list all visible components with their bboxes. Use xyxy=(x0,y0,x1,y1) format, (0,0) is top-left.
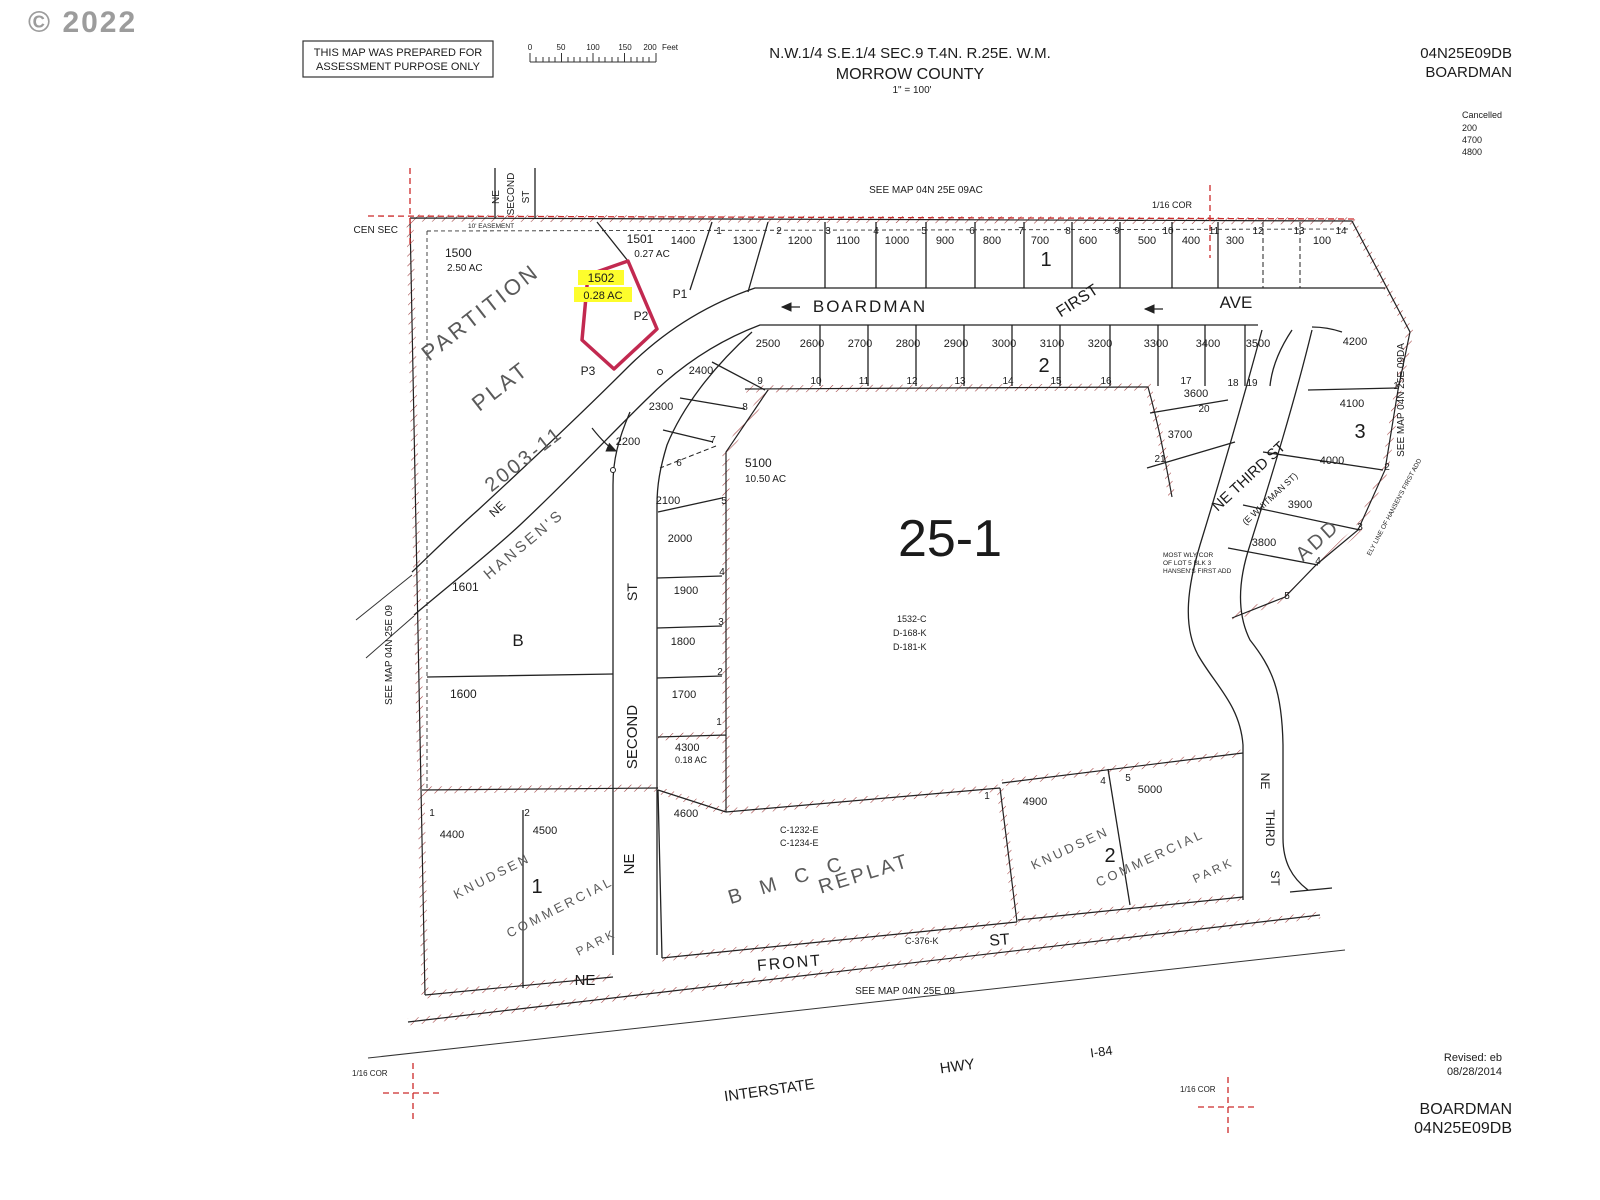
see-map-right: SEE MAP 04N 25E 09DA xyxy=(1396,343,1407,457)
lot-corner-number: 19 xyxy=(1246,378,1258,389)
hwy-label: HWY xyxy=(939,1056,976,1078)
scale-tick-50: 50 xyxy=(557,43,566,52)
lot-label: 1600 xyxy=(450,687,477,701)
ave-label: AVE xyxy=(1220,293,1253,312)
partition-lot-p3: P3 xyxy=(581,364,596,378)
knudsen1-park: PARK xyxy=(573,926,618,958)
front-st-ne: NE xyxy=(575,972,596,989)
lot-corner-number: 9 xyxy=(1114,226,1120,237)
block2-number: 2 xyxy=(1038,355,1049,377)
partition-lot-p2: P2 xyxy=(634,309,649,323)
scale-tick-0: 0 xyxy=(528,43,533,52)
lot-corner-number: 1 xyxy=(1393,381,1399,392)
lot-label: 3400 xyxy=(1196,338,1220,350)
lot-corner-number: 4 xyxy=(873,226,879,237)
interstate-label: INTERSTATE xyxy=(723,1076,816,1106)
lot-corner-number: 5 xyxy=(721,496,727,507)
lot-corner-number: 12 xyxy=(906,376,918,387)
lot-label: 2600 xyxy=(800,338,824,350)
tax-area-label: 25-1 xyxy=(898,510,1002,568)
ne-second-st-top-st: ST xyxy=(521,191,532,204)
lot-label: 100 xyxy=(1313,235,1331,247)
lot-label: 4500 xyxy=(533,825,557,837)
lot-label: 2700 xyxy=(848,338,872,350)
boardman-ave-label: BOARDMAN xyxy=(813,297,927,316)
lot-corner-number: 3 xyxy=(825,226,831,237)
lot-label: 3200 xyxy=(1088,338,1112,350)
lot-corner-number: 6 xyxy=(969,226,975,237)
lot-corner-number: 5 xyxy=(1125,773,1131,784)
lot-acreage: 0.27 AC xyxy=(634,249,670,260)
lot-corner-number: 1 xyxy=(716,717,722,728)
block1-number: 1 xyxy=(1040,249,1051,271)
lot-label: 2100 xyxy=(656,495,680,507)
ne-second-st-top-second: SECOND xyxy=(506,173,517,216)
lot-corner-number: 1 xyxy=(716,226,722,237)
cancelled-lot: 200 xyxy=(1462,123,1477,133)
header: © 2022 THIS MAP WAS PREPARED FOR ASSESSM… xyxy=(28,6,1512,157)
lot-label: 4000 xyxy=(1320,455,1344,467)
lot-label: 4200 xyxy=(1343,336,1367,348)
see-map-left: SEE MAP 04N 25E 09 xyxy=(384,605,395,705)
lot-corner-number: 12 xyxy=(1252,226,1264,237)
disclaimer-line2: ASSESSMENT PURPOSE ONLY xyxy=(316,61,481,73)
lot-label: 700 xyxy=(1031,235,1049,247)
junction-node xyxy=(658,370,663,375)
lot-acreage: 2.50 AC xyxy=(447,263,483,274)
scale-tick-200: 200 xyxy=(643,43,657,52)
sheet-name-bottom: BOARDMAN xyxy=(1420,1101,1512,1118)
lot-label: 3300 xyxy=(1144,338,1168,350)
lot-label: 1300 xyxy=(733,235,757,247)
lot-label: 1700 xyxy=(672,689,696,701)
lot-label: 600 xyxy=(1079,235,1097,247)
plat-number-label: 2003-11 xyxy=(481,422,568,497)
second-st-mid-second: SECOND xyxy=(624,705,641,769)
highlight-lot-number: 1502 xyxy=(588,271,615,285)
lot-corner-number: 3 xyxy=(1357,522,1363,533)
lot-corner-number: 1 xyxy=(984,791,990,802)
lot-corner-number: 2 xyxy=(717,667,723,678)
lot-corner-number: 3 xyxy=(718,617,724,628)
lot-label: 2300 xyxy=(649,401,673,413)
sixteenth-corner-top: 1/16 COR xyxy=(1152,200,1193,210)
highlight-lot-acreage: 0.28 AC xyxy=(583,290,622,302)
third-st-bottom-ne: NE xyxy=(1258,773,1272,790)
lot-label: 2800 xyxy=(896,338,920,350)
lot-label: 1601 xyxy=(452,580,479,594)
lot-label: 5000 xyxy=(1138,784,1162,796)
lot-corner-number: 4 xyxy=(1315,556,1321,567)
sixteenth-corner-bottom-left: 1/16 COR xyxy=(352,1069,388,1078)
knudsen1-commercial: COMMERCIAL xyxy=(504,873,616,940)
plat-label: PLAT xyxy=(467,356,534,416)
c ancelled-lot: 4800 xyxy=(1462,147,1482,157)
revised-date: 08/28/2014 xyxy=(1447,1066,1502,1078)
cancelled-label: Cancelled xyxy=(1462,110,1502,120)
front-st-st: ST xyxy=(989,931,1011,950)
block2-lot-labels: 2500 2600 2700 2800 2900 3000 3100 3200 … xyxy=(756,338,1270,389)
first-ave-label: FIRST xyxy=(1054,281,1102,321)
bmcc-ref-1: C-1232-E xyxy=(780,825,819,835)
wly-corner-note-2: OF LOT 5 BLK 3 xyxy=(1163,560,1212,567)
lot-corner-number: 17 xyxy=(1180,376,1192,387)
lot-acreage: 10.50 AC xyxy=(745,474,786,485)
lot-corner-number: 7 xyxy=(1018,226,1024,237)
ely-line-note: ELY LINE OF HANSEN'S FIRST ADD xyxy=(1366,457,1423,557)
lot-corner-number: 2 xyxy=(776,226,782,237)
lot-label: 800 xyxy=(983,235,1001,247)
easement-label: 10' EASEMENT xyxy=(468,223,514,230)
lot-label: 2500 xyxy=(756,338,780,350)
deed-ref-2: D-168-K xyxy=(893,628,927,638)
lot-label: 400 xyxy=(1182,235,1200,247)
lot-label: 300 xyxy=(1226,235,1244,247)
lot-corner-number: 8 xyxy=(742,402,748,413)
copyright-watermark: © 2022 xyxy=(28,6,137,39)
lot-label: 2400 xyxy=(689,365,713,377)
lot-label: 2000 xyxy=(668,533,692,545)
lot-corner-number: 21 xyxy=(1154,454,1166,465)
lot-label: 500 xyxy=(1138,235,1156,247)
partition-label: PARTITION xyxy=(417,258,545,365)
lot-label: 3700 xyxy=(1168,429,1192,441)
lot-corner-number: 4 xyxy=(719,567,725,578)
lot-corner-number: 8 xyxy=(1065,226,1071,237)
sixteenth-corner-bottom-right: 1/16 COR xyxy=(1180,1085,1216,1094)
lot-corner-number: 11 xyxy=(1209,226,1220,237)
third-st-bottom-third: THIRD xyxy=(1263,810,1277,847)
map-title-line1: N.W.1/4 S.E.1/4 SEC.9 T.4N. R.25E. W.M. xyxy=(769,45,1051,62)
second-st-mid-ne: NE xyxy=(621,854,638,875)
disclaimer-line1: THIS MAP WAS PREPARED FOR xyxy=(314,47,483,59)
footer: Revised: eb 08/28/2014 BOARDMAN 04N25E09… xyxy=(1414,1052,1512,1137)
lot-label: 3100 xyxy=(1040,338,1064,350)
subdivision-labels: PARTITION PLAT 2003-11 ADD B M C C REPLA… xyxy=(417,249,1366,959)
lot-corner-number: 11 xyxy=(859,376,870,387)
sheet-id-bottom: 04N25E09DB xyxy=(1414,1120,1512,1137)
lot-label: 4600 xyxy=(674,808,698,820)
lot-label: 2200 xyxy=(616,436,640,448)
knudsen2-park: PARK xyxy=(1191,855,1237,886)
sheet-id-top: 04N25E09DB xyxy=(1420,45,1512,62)
block3-number: 3 xyxy=(1354,421,1365,443)
ne-second-st-top-ne: NE xyxy=(491,190,502,204)
lot-corner-number: 18 xyxy=(1227,378,1239,389)
lot-corner-number: 14 xyxy=(1335,226,1347,237)
scale-bar: 0 50 100 150 200 Feet xyxy=(528,43,679,62)
see-map-bottom: SEE MAP 04N 25E 09 xyxy=(855,986,955,997)
map-scale-note: 1" = 100' xyxy=(892,85,931,96)
knudsen1-block-number: 1 xyxy=(531,876,542,898)
lot-corner-number: 15 xyxy=(1050,376,1062,387)
knudsen2-block-number: 2 xyxy=(1104,845,1115,867)
lot-label: 1100 xyxy=(836,235,860,247)
blockB-letter: B xyxy=(512,631,523,650)
lot-label: 1501 xyxy=(627,232,654,246)
junction-node xyxy=(611,468,616,473)
lot-corner-number: 13 xyxy=(1293,226,1305,237)
hansens-ne-label: NE xyxy=(486,498,508,520)
lot-label: 3900 xyxy=(1288,499,1312,511)
wly-corner-note-3: HANSEN'S FIRST ADD xyxy=(1163,568,1232,575)
lot-label: 3800 xyxy=(1252,537,1276,549)
lot-label: 4900 xyxy=(1023,796,1047,808)
lot-corner-number: 7 xyxy=(710,435,716,446)
lot-label: 3000 xyxy=(992,338,1016,350)
scale-tick-150: 150 xyxy=(618,43,632,52)
lot-label: 1000 xyxy=(885,235,909,247)
revised-label: Revised: eb xyxy=(1444,1052,1502,1064)
lot-label: 5100 xyxy=(745,456,772,470)
block1-lot-labels: 1400 1300 1200 1100 1000 900 800 700 600… xyxy=(671,226,1347,247)
lot-corner-number: 1 xyxy=(429,808,435,819)
lot-corner-number: 2 xyxy=(524,808,530,819)
lot-label: 1900 xyxy=(674,585,698,597)
lot-label: 1200 xyxy=(788,235,812,247)
center-section-label: CEN SEC xyxy=(354,225,398,236)
lot-label: 1800 xyxy=(671,636,695,648)
lot-label: 900 xyxy=(936,235,954,247)
lot-corner-number: 5 xyxy=(1284,591,1290,602)
partition-lot-p1: P1 xyxy=(673,287,688,301)
lot-label: 4400 xyxy=(440,829,464,841)
plat-map-page: © 2022 THIS MAP WAS PREPARED FOR ASSESSM… xyxy=(0,0,1600,1200)
lot-corner-number: 5 xyxy=(921,226,927,237)
bmcc-ref-2: C-1234-E xyxy=(780,838,819,848)
scale-unit: Feet xyxy=(662,43,679,52)
lot-label: 2900 xyxy=(944,338,968,350)
lot-corner-number: 6 xyxy=(676,458,682,469)
cancelled-lot: 4700 xyxy=(1462,135,1482,145)
plat-map-svg: © 2022 THIS MAP WAS PREPARED FOR ASSESSM… xyxy=(0,0,1600,1200)
knudsen1-name: KNUDSEN xyxy=(451,850,533,902)
bmcc-ref-3: C-376-K xyxy=(905,936,939,946)
lot-corner-number: 9 xyxy=(757,376,763,387)
lot-label: 3600 xyxy=(1184,388,1208,400)
lot-label: 4300 xyxy=(675,742,699,754)
lot-label: 4100 xyxy=(1340,398,1364,410)
deed-ref-1: 1532-C xyxy=(897,614,927,624)
lot-corner-number: 16 xyxy=(1100,376,1112,387)
see-map-top: SEE MAP 04N 25E 09AC xyxy=(869,185,983,196)
lot-label: 1400 xyxy=(671,235,695,247)
lot-corner-number: 2 xyxy=(1384,462,1390,473)
map-title-line2: MORROW COUNTY xyxy=(836,66,985,83)
i84-label: I-84 xyxy=(1089,1043,1113,1061)
lot-corner-number: 4 xyxy=(1100,776,1106,787)
second-st-mid-st: ST xyxy=(624,583,640,601)
lot-corner-number: 13 xyxy=(954,376,966,387)
third-st-bottom-st: ST xyxy=(1268,870,1282,886)
lot-label: 1500 xyxy=(445,246,472,260)
lot-corner-number: 20 xyxy=(1198,404,1210,415)
wly-corner-note-1: MOST WLY COR xyxy=(1163,552,1214,559)
lot-corner-number: 10 xyxy=(810,376,822,387)
lot-label: 3500 xyxy=(1246,338,1270,350)
sheet-name-top: BOARDMAN xyxy=(1425,64,1512,81)
scale-tick-100: 100 xyxy=(586,43,600,52)
deed-ref-3: D-181-K xyxy=(893,642,927,652)
lot-corner-number: 10 xyxy=(1162,226,1174,237)
knudsen2-name: KNUDSEN xyxy=(1029,823,1112,872)
lot-acreage: 0.18 AC xyxy=(675,755,708,765)
lot-corner-number: 14 xyxy=(1002,376,1014,387)
